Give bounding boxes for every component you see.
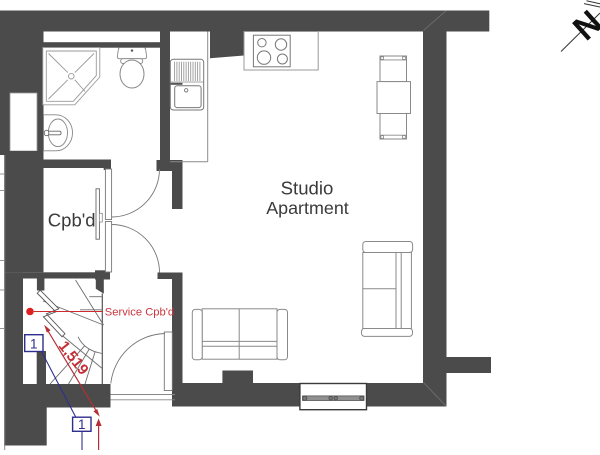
svg-text:Studio: Studio <box>281 177 334 198</box>
svg-text:Cpb'd: Cpb'd <box>48 209 96 230</box>
svg-text:Service Cpb'd: Service Cpb'd <box>105 307 174 319</box>
svg-text:1: 1 <box>78 417 86 432</box>
svg-text:Apartment: Apartment <box>266 198 349 218</box>
svg-text:1: 1 <box>30 336 38 351</box>
